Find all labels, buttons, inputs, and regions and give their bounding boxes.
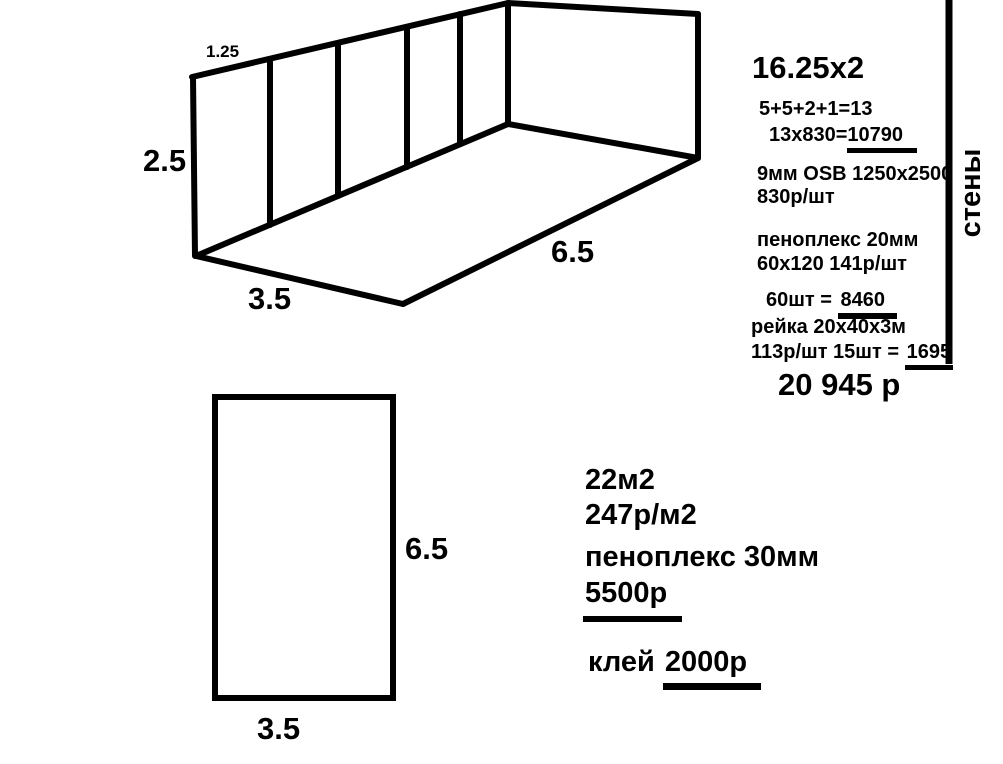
- dim-label-long-side-3d: 6.5: [551, 236, 594, 269]
- floor-foam-total: 5500р: [583, 578, 682, 608]
- dim-label-plan-long-side: 6.5: [405, 533, 448, 566]
- glue-label: клей: [588, 646, 663, 678]
- walls-panel-count-calc: 5+5+2+1=13: [759, 99, 872, 120]
- foam-qty-expression: 60шт =: [766, 289, 838, 311]
- foam-qty-result: 8460: [838, 289, 898, 319]
- walls-batten-calc: 113р/шт 15шт = 1695: [751, 342, 953, 363]
- glue-total-value: 2000р: [663, 646, 761, 690]
- floor-front-right-edge: [403, 158, 698, 304]
- paint-sketch-canvas: 1.25 2.5 3.5 6.5 6.5 3.5 16.25x2 5+5+2+1…: [0, 0, 1003, 764]
- dim-label-wall-height: 2.5: [143, 145, 186, 178]
- walls-foam-size-price: 60х120 141р/шт: [757, 254, 907, 275]
- dim-label-panel-width: 1.25: [206, 43, 239, 61]
- floor-unit-price: 247р/м2: [585, 500, 697, 530]
- dim-label-plan-short-side: 3.5: [257, 713, 300, 746]
- walls-osb-unit-price: 830р/шт: [757, 187, 835, 208]
- floor-foam-spec: пеноплекс 30мм: [585, 542, 819, 572]
- walls-foam-spec: пеноплекс 20мм: [757, 230, 918, 251]
- right-wall-top-edge: [508, 3, 698, 14]
- walls-osb-spec: 9мм OSB 1250x2500: [757, 164, 952, 185]
- batten-expression: 113р/шт 15шт =: [751, 341, 905, 363]
- left-wall-left-edge: [193, 77, 195, 256]
- osb-cost-expression: 13x830=: [769, 124, 847, 146]
- walls-section-label: стены: [955, 133, 987, 253]
- walls-3d-sketch: [192, 3, 698, 304]
- floor-area: 22м2: [585, 465, 655, 495]
- walls-title: 16.25x2: [752, 52, 864, 85]
- floor-plan-rectangle: [215, 397, 393, 698]
- osb-cost-result: 10790: [847, 124, 917, 153]
- walls-foam-qty-calc: 60шт = 8460: [766, 290, 897, 311]
- floor-front-left-edge: [196, 256, 403, 304]
- floor-glue-line: клей 2000р: [588, 647, 761, 677]
- batten-result: 1695: [905, 341, 954, 370]
- right-wall-bottom-edge: [508, 124, 698, 158]
- dim-label-short-side-3d: 3.5: [248, 283, 291, 316]
- walls-batten-spec: рейка 20х40х3м: [751, 317, 906, 338]
- foam-total-value: 5500р: [583, 577, 682, 622]
- walls-total: 20 945 р: [778, 369, 900, 402]
- walls-osb-cost-calc: 13x830=10790: [769, 125, 917, 146]
